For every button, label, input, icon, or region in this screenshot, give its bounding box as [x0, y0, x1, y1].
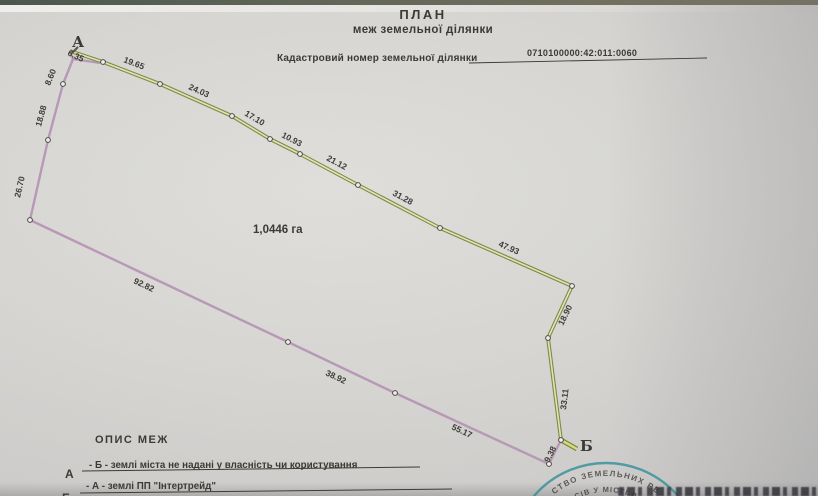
cutoff-illegible-text — [618, 487, 818, 496]
cadastral-number-label: Кадастровий номер земельної ділянки — [277, 53, 477, 64]
page-title: ПЛАН — [399, 7, 446, 22]
legend-heading: ОПИС МЕЖ — [95, 434, 169, 446]
cadastral-number-value: 0710100000:42:011:0060 — [527, 48, 637, 58]
paper-grain-texture — [0, 0, 818, 496]
page-subtitle: меж земельної ділянки — [353, 24, 493, 36]
point-a-label: А — [72, 33, 85, 51]
scanned-land-plan-document: 19.65 24.03 17.10 10.93 21.12 31.28 47.9… — [0, 0, 818, 496]
point-b-label: Б — [580, 437, 593, 455]
legend-row-text-b: - А - землі ПП "Інтертрейд" — [86, 481, 216, 492]
legend-row-point-a: А — [65, 467, 74, 481]
land-plot-plan-drawing: 19.65 24.03 17.10 10.93 21.12 31.28 47.9… — [0, 0, 818, 496]
plot-area-label: 1,0446 га — [253, 224, 303, 236]
legend-row-point-b: Б — [62, 491, 71, 496]
